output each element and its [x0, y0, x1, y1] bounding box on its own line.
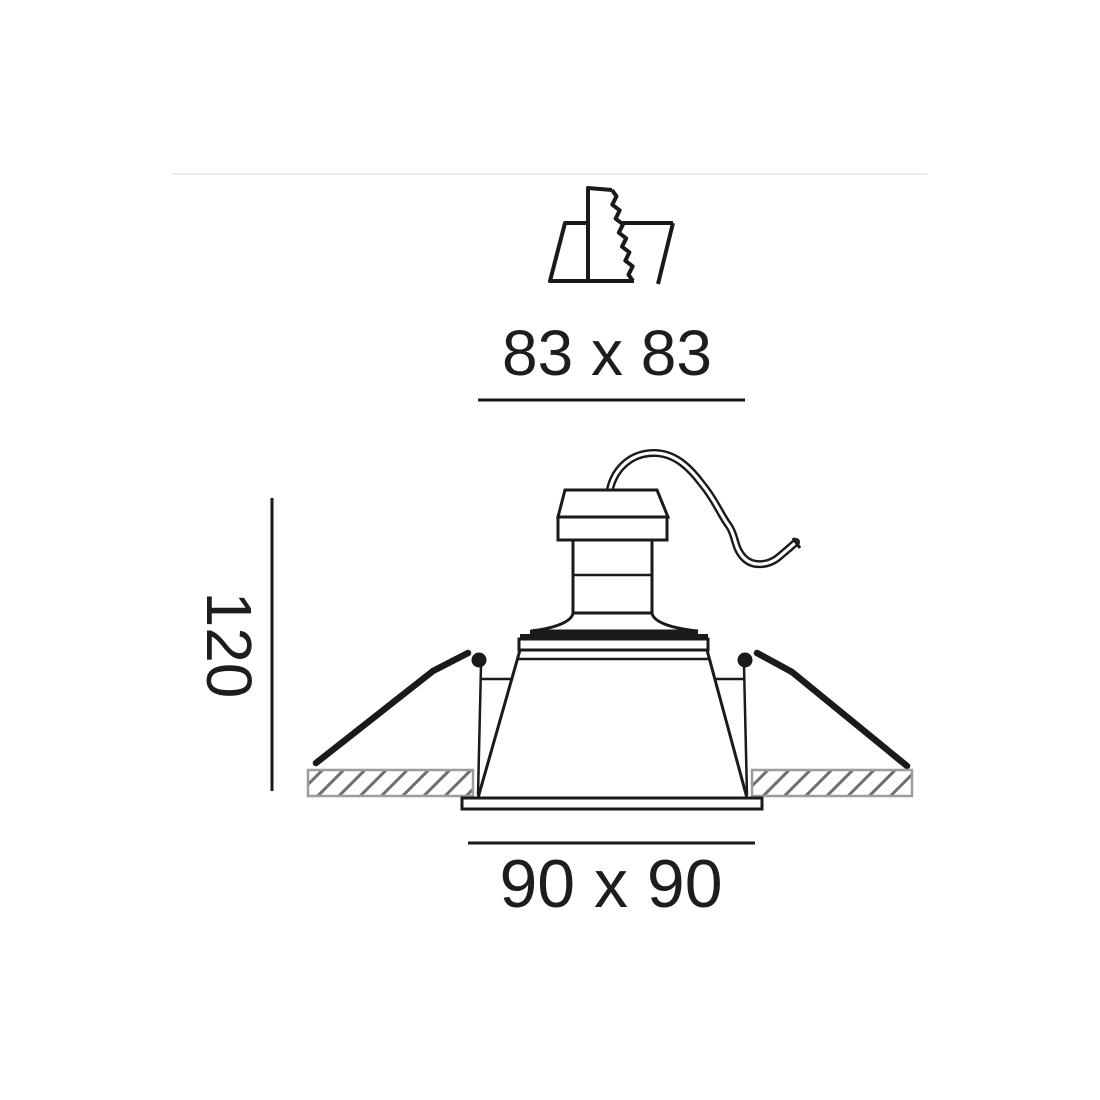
drawing-canvas: 83 x 83 — [0, 0, 1100, 1100]
ceiling-section-right — [752, 770, 912, 796]
retaining-spring-right — [738, 653, 908, 767]
spring-curl-right — [738, 653, 753, 668]
fixture-elevation — [308, 453, 912, 809]
lamp-flange — [519, 639, 708, 650]
holder-band — [558, 517, 667, 540]
holder-bell-flare — [531, 613, 698, 631]
width-dimension-label: 90 x 90 — [499, 846, 722, 922]
holder-neck — [573, 540, 652, 613]
retaining-spring-left — [316, 653, 487, 764]
width-dimension: 90 x 90 — [468, 843, 755, 922]
cutout-dimension-label: 83 x 83 — [502, 317, 712, 389]
fixture-body — [478, 650, 747, 798]
cutout-piece-edge — [658, 223, 673, 284]
saw-ceiling-cutout-icon — [550, 188, 673, 284]
height-dimension-label: 120 — [193, 592, 265, 699]
trim-ring — [462, 798, 762, 809]
spring-curl-left — [472, 653, 487, 668]
ceiling-section-left — [308, 770, 473, 796]
lamp-holder — [519, 490, 708, 650]
height-dimension: 120 — [193, 498, 272, 791]
holder-cap — [558, 490, 668, 517]
saw-blade-jagged-edge — [612, 190, 633, 281]
saw-blade — [588, 188, 612, 282]
